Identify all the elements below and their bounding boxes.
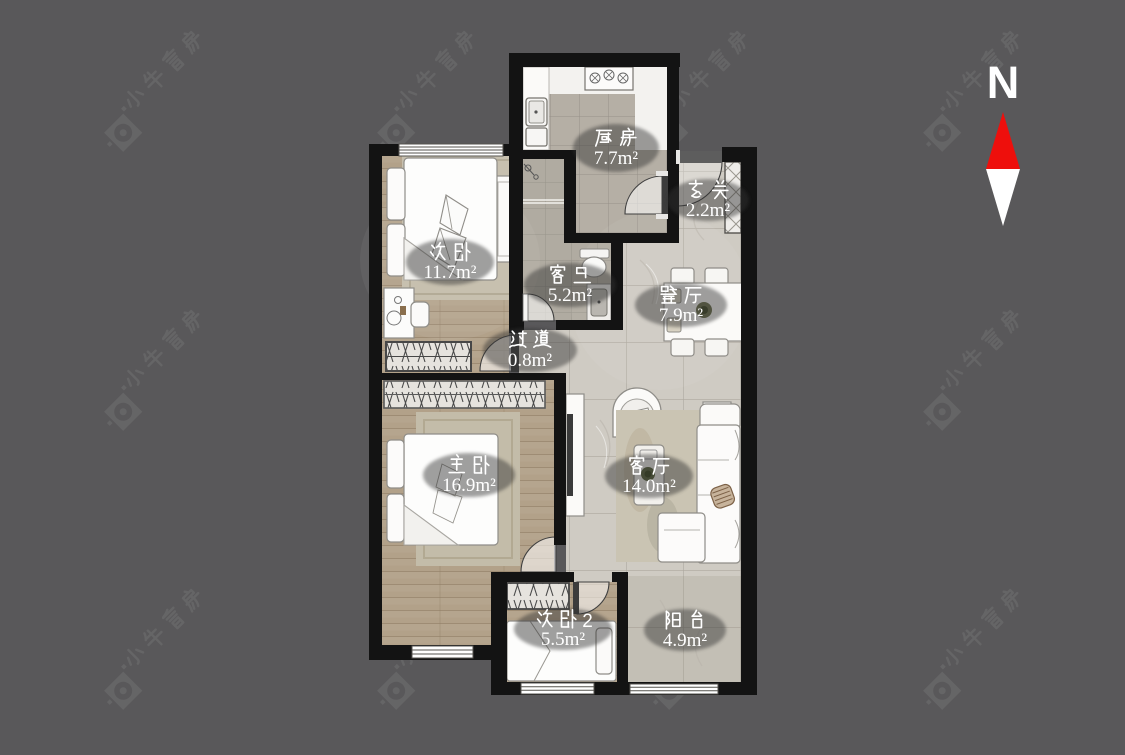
svg-text:16.9m²: 16.9m² [442,475,496,496]
svg-text:5.2m²: 5.2m² [548,285,593,306]
svg-text:14.0m²: 14.0m² [622,476,676,497]
svg-text:11.7m²: 11.7m² [423,262,476,283]
svg-text:5.5m²: 5.5m² [541,629,586,650]
svg-text:N: N [987,57,1020,108]
svg-text:7.7m²: 7.7m² [594,148,639,169]
svg-text:4.9m²: 4.9m² [663,630,708,651]
svg-text:2.2m²: 2.2m² [686,200,731,221]
svg-text:0.8m²: 0.8m² [508,350,553,371]
svg-text:7.9m²: 7.9m² [659,305,704,326]
